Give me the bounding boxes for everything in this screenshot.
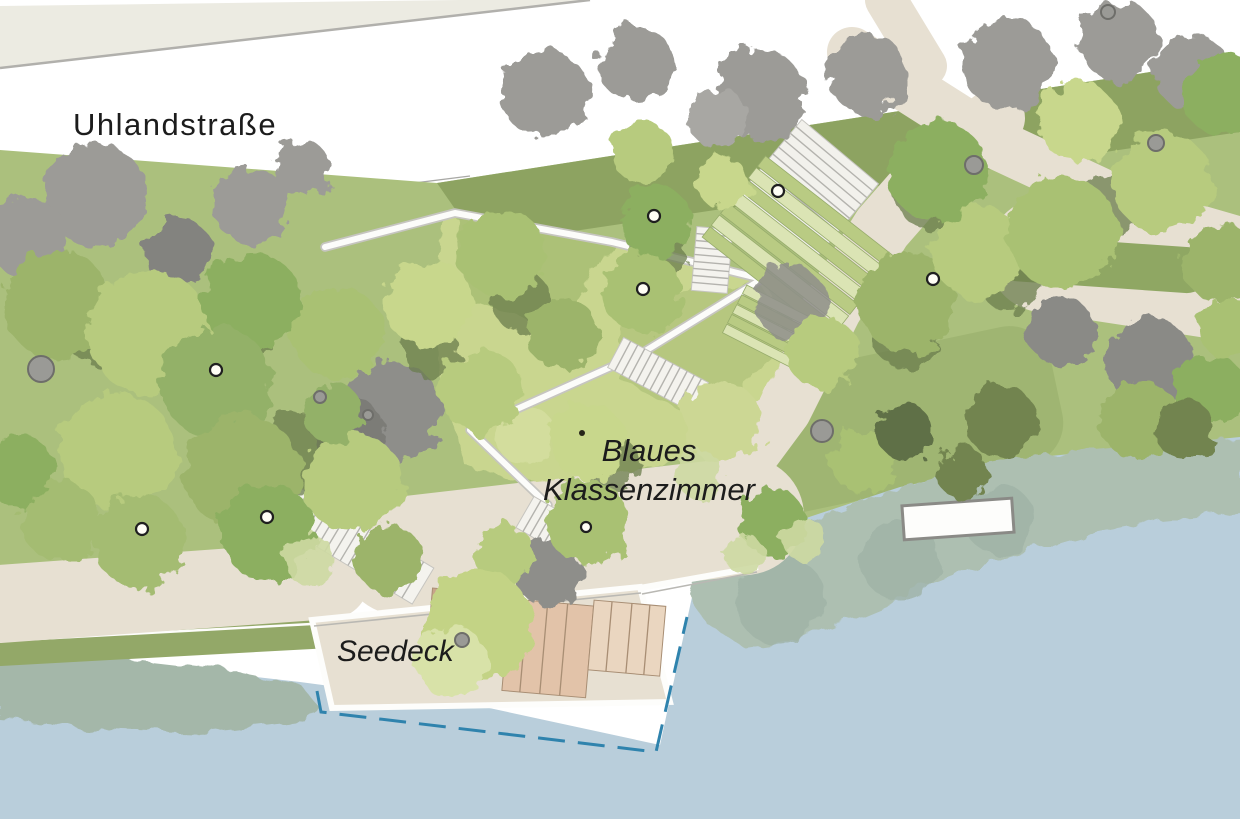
blue-classroom-label-line2: Klassenzimmer xyxy=(543,472,757,507)
site-plan: Uhlandstraße Blaues Klassenzimmer Seedec… xyxy=(0,0,1240,819)
small-trunk-dot xyxy=(579,430,585,436)
promenade-west xyxy=(0,580,330,604)
blue-classroom-label-line1: Blaues xyxy=(602,433,697,468)
street-label: Uhlandstraße xyxy=(73,107,277,142)
floating-pier xyxy=(902,498,1014,540)
lake-deck-label: Seedeck xyxy=(337,635,456,668)
